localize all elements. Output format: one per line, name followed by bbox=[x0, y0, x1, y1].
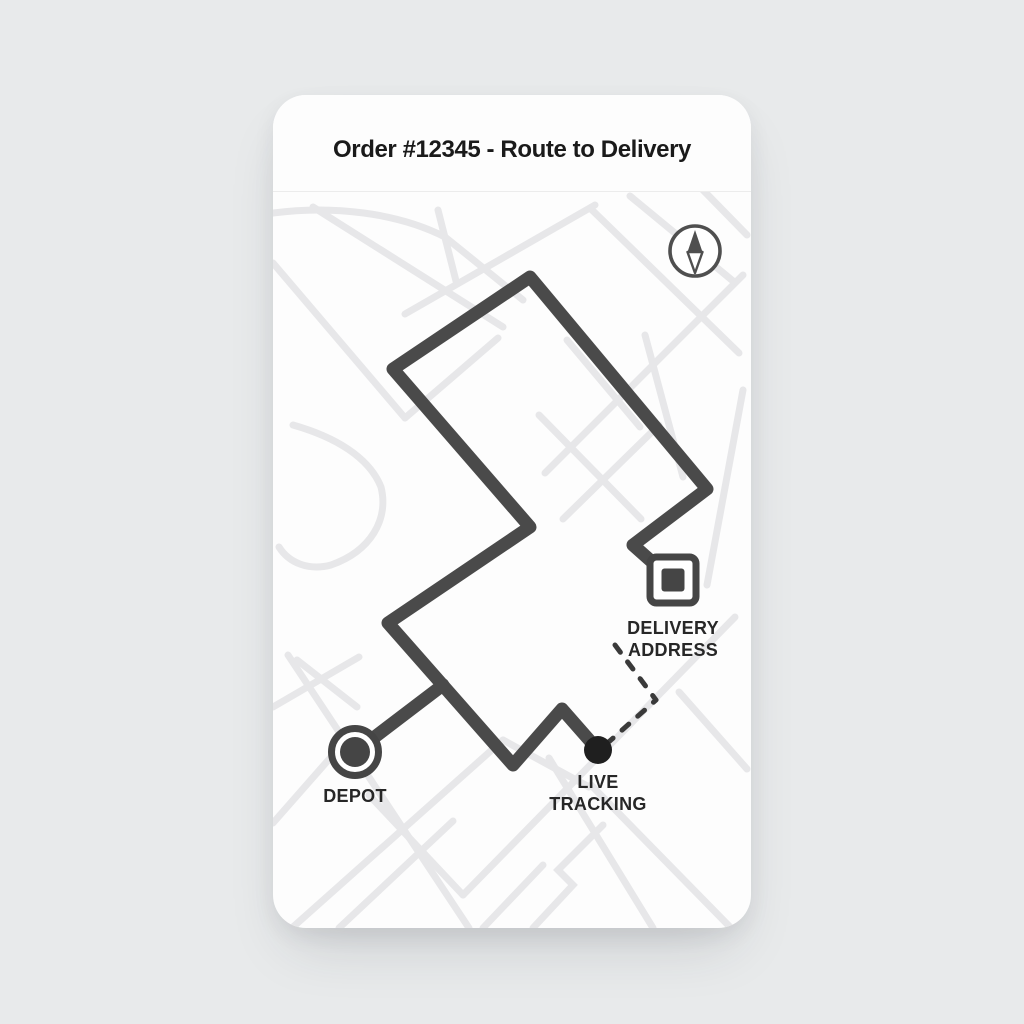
page-title: Order #12345 - Route to Delivery bbox=[333, 136, 691, 164]
live-tracking-label-line2: TRACKING bbox=[549, 793, 646, 815]
order-card: DEPOT DELIVERY ADDRESS LIVE TRACKING Ord… bbox=[273, 95, 751, 928]
street-line bbox=[533, 825, 603, 928]
compass-button[interactable] bbox=[667, 223, 723, 279]
map-area[interactable]: DEPOT DELIVERY ADDRESS LIVE TRACKING bbox=[273, 95, 751, 928]
delivery-address-label: DELIVERY ADDRESS bbox=[627, 617, 719, 661]
depot-label: DEPOT bbox=[323, 785, 387, 807]
card-header: Order #12345 - Route to Delivery bbox=[273, 95, 751, 192]
compass-icon bbox=[667, 223, 723, 279]
live-tracking-label: LIVE TRACKING bbox=[549, 771, 646, 815]
delivery-address-label-line2: ADDRESS bbox=[627, 639, 719, 661]
delivery-address-label-line1: DELIVERY bbox=[627, 617, 719, 639]
live-tracking-dot-icon bbox=[584, 736, 612, 764]
page-root: { "colors": { "page_bg": "#e8eaeb", "car… bbox=[0, 0, 1024, 1024]
street-line bbox=[273, 263, 405, 418]
delivery-address-icon bbox=[647, 554, 700, 607]
depot-icon bbox=[328, 725, 382, 779]
street-line bbox=[279, 425, 383, 567]
page-background: DEPOT DELIVERY ADDRESS LIVE TRACKING Ord… bbox=[0, 0, 1024, 1024]
street-line bbox=[679, 692, 747, 769]
route-layer bbox=[355, 277, 707, 765]
street-line bbox=[483, 865, 543, 928]
live-tracking-label-line1: LIVE bbox=[549, 771, 646, 793]
